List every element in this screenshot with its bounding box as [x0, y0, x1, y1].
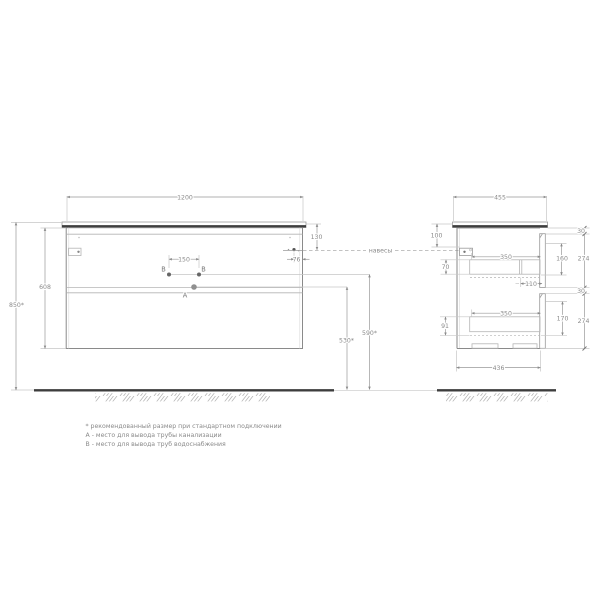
- sewer-height-value: 530*: [339, 338, 354, 345]
- box2-length-dimension: 350: [472, 310, 541, 318]
- body-height-value: 608: [39, 284, 51, 291]
- base-slot-left: [472, 344, 498, 348]
- base-slot-right: [513, 344, 537, 348]
- hangers-label: навесы: [369, 248, 393, 255]
- front1-height-value: 274: [578, 256, 590, 263]
- sewer-height-dimension: 530*: [339, 287, 354, 390]
- box2-depth-value: 170: [557, 316, 569, 323]
- front-countertop: [62, 222, 306, 228]
- box2-side-value: 91: [441, 323, 449, 330]
- mount-offset-value: 100: [431, 233, 443, 240]
- floor-hatching-side: [446, 393, 548, 401]
- pipe-spacing-value: 150: [178, 256, 190, 263]
- front-cabinet-body: [66, 228, 302, 349]
- sewer-outlet-dot: [191, 284, 197, 290]
- lower-drawer-front: [540, 294, 546, 349]
- front-width-dimension: 1200: [67, 194, 303, 221]
- hangers-level-line: навесы: [283, 248, 460, 255]
- point-b-left-label: B: [161, 266, 166, 274]
- box1-side-dimension: 70: [441, 260, 470, 274]
- footnote-point-b: В - место для вывода труб водоснабжения: [86, 440, 227, 448]
- water-height-dimension: 590*: [362, 275, 377, 390]
- upper-drawer-front: [540, 234, 546, 288]
- side-depth-dimension: 455: [454, 194, 547, 221]
- drawer-detail-dot-right: [289, 237, 291, 239]
- front2-height-value: 274: [578, 318, 590, 325]
- gap-mid-value: 30: [577, 288, 585, 295]
- base-depth-dimension: 436: [457, 351, 541, 372]
- box2-side-dimension: 91: [440, 317, 470, 336]
- floor-front: [34, 390, 437, 401]
- hanger-bracket-side: [460, 248, 473, 255]
- box1-depth-value: 160: [556, 256, 568, 263]
- box1-length-value: 350: [500, 254, 512, 261]
- lower-drawer-box: [470, 317, 540, 336]
- back-offset-value: 110: [525, 281, 537, 288]
- water-outlet-dot-left: [167, 273, 171, 277]
- front-total-height-dimension: 850*: [9, 223, 62, 391]
- drawer-detail-dot-left: [78, 237, 80, 239]
- side-countertop: [453, 222, 548, 228]
- floor-side: [437, 390, 556, 401]
- vanity-dimension-drawing: 1200: [0, 0, 600, 600]
- back-offset-dimension: 110: [516, 281, 543, 288]
- front-width-value: 1200: [177, 194, 193, 201]
- base-depth-value: 436: [493, 365, 505, 372]
- total-height-value: 850*: [9, 302, 24, 309]
- front-body-height-dimension: 608: [39, 228, 66, 349]
- gap-top-value: 30: [577, 228, 585, 235]
- side-depth-value: 455: [494, 194, 506, 201]
- side-view: 455: [431, 194, 590, 401]
- front-view: 1200: [9, 194, 459, 401]
- front-top-gap-dimension: 130: [306, 224, 322, 250]
- box1-side-value: 70: [442, 264, 450, 271]
- technical-drawing-page: 1200: [0, 0, 600, 600]
- front-heights-chain-dimension: 30 274 30 274: [541, 226, 590, 351]
- hinge-inset-value: 76: [293, 257, 301, 264]
- footnote-recommended-size: * рекомендованный размер при стандартном…: [86, 422, 282, 430]
- footnote-point-a: А - место для вывода трубы канализации: [86, 431, 222, 439]
- drawer-fronts-profile: [540, 234, 546, 349]
- water-height-value: 590*: [362, 330, 377, 337]
- floor-hatching-front: [95, 393, 270, 401]
- footnotes: * рекомендованный размер при стандартном…: [86, 422, 282, 448]
- point-b-right-label: B: [201, 266, 206, 274]
- point-a-label: A: [183, 292, 188, 300]
- top-gap-value: 130: [311, 234, 323, 241]
- box2-length-value: 350: [500, 310, 512, 317]
